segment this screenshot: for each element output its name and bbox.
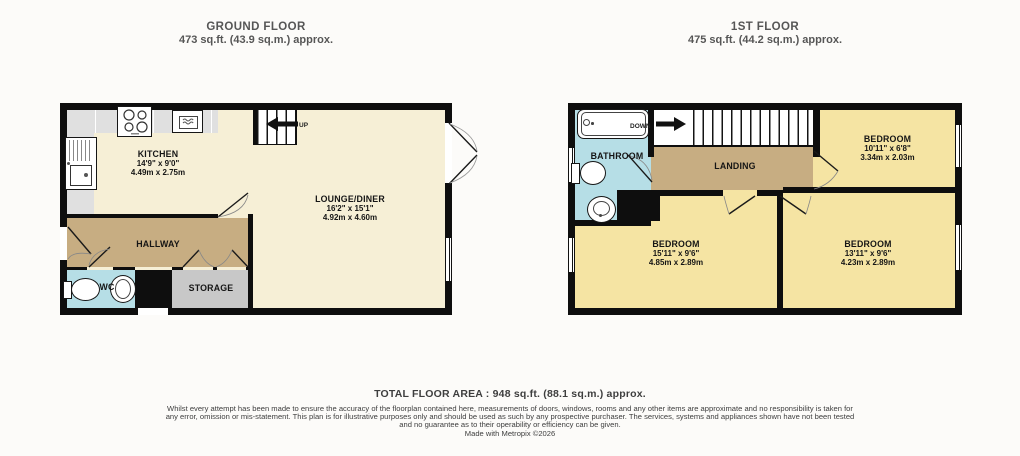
total-floor-area: TOTAL FLOOR AREA : 948 sq.ft. (88.1 sq.m… [0,388,1020,400]
wall [651,145,813,147]
bedroom-right-label: BEDROOM 13'11" x 9'6" 4.23m x 2.89m [800,240,936,267]
wc-label: WC [92,283,122,292]
hob-icon [117,106,152,137]
storage-label: STORAGE [172,284,250,293]
ground-floor-title-block: GROUND FLOOR 473 sq.ft. (43.9 sq.m.) app… [60,21,452,46]
disclaimer-text: Whilst every attempt has been made to en… [164,405,856,430]
landing-label: LANDING [675,162,795,171]
first-floor-title-block: 1ST FLOOR 475 sq.ft. (44.2 sq.m.) approx… [568,21,962,46]
metropix-credit: Made with Metropix ©2026 [0,430,1020,438]
down-label: DOWN [630,123,651,130]
window [955,125,962,167]
ground-floor-plan: KITCHEN 14'9" x 9'0" 4.49m x 2.75m LOUNG… [60,103,452,315]
toilet-cistern [571,163,580,184]
first-floor-title: 1ST FLOOR [568,21,962,33]
staircase-down [693,110,813,145]
wall [172,267,183,270]
basin-icon [587,196,616,223]
floorplan-canvas: GROUND FLOOR 473 sq.ft. (43.9 sq.m.) app… [0,0,1020,456]
bathroom-label: BATHROOM [579,152,655,161]
window [445,238,452,281]
bedroom-left-label: BEDROOM 15'11" x 9'6" 4.85m x 2.89m [605,240,747,267]
footer: TOTAL FLOOR AREA : 948 sq.ft. (88.1 sq.m… [0,388,1020,438]
staircase-up [253,110,297,145]
first-floor-area: 475 sq.ft. (44.2 sq.m.) approx. [568,34,962,46]
french-door-opening [445,123,452,183]
wall [67,267,87,270]
hallway-label: HALLWAY [93,240,223,249]
wall [213,267,217,270]
window [955,225,962,270]
kitchen-label: KITCHEN 14'9" x 9'0" 4.49m x 2.75m [85,150,231,177]
wall [67,214,218,218]
wall [248,214,253,308]
ground-floor-title: GROUND FLOOR [60,21,452,33]
wall [246,267,250,270]
bedroom-top-label: BEDROOM 10'11" x 6'8" 3.34m x 2.03m [825,135,950,162]
toilet-icon [580,161,606,185]
wall [813,110,820,157]
wall [777,190,783,308]
wall [651,190,723,196]
first-floor-plan: BATHROOM LANDING BEDROOM 10'11" x 6'8" 3… [568,103,962,315]
stair-corridor [654,110,693,145]
oven-icon [172,110,203,133]
window [568,238,575,272]
ground-floor-area: 473 sq.ft. (43.9 sq.m.) approx. [60,34,452,46]
wall [757,190,778,196]
front-door-opening [60,227,67,260]
wall [783,187,955,193]
wall-chimney-block [135,270,172,308]
rear-door-opening [138,308,168,315]
up-label: UP [299,122,308,129]
wall [113,267,135,270]
lounge-diner-label: LOUNGE/DINER 16'2" x 15'1" 4.92m x 4.60m [270,195,430,222]
